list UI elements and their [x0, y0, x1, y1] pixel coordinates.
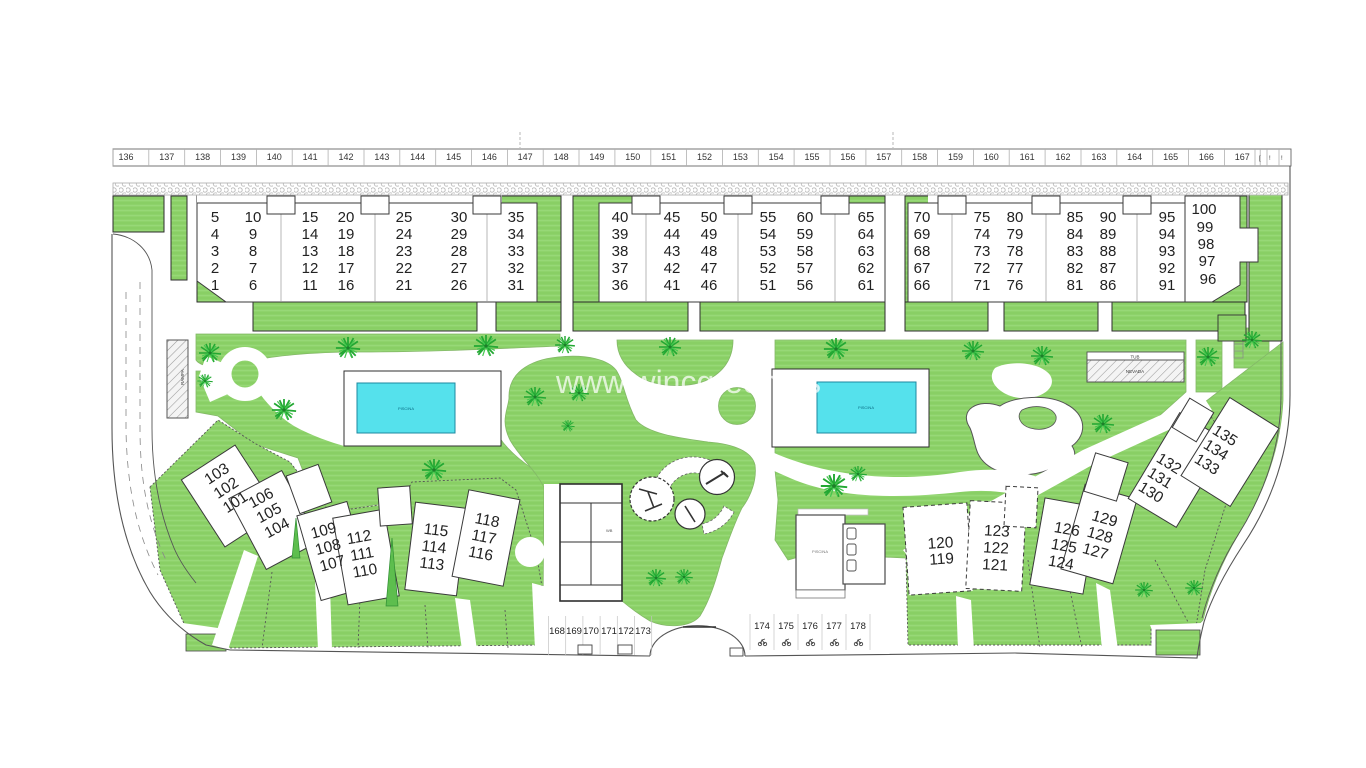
svg-text:8079787776: 8079787776	[1007, 209, 1024, 294]
svg-text:54321: 54321	[211, 209, 219, 294]
svg-text:NEVADA: NEVADA	[1126, 369, 1144, 374]
svg-text:9594939291: 9594939291	[1159, 209, 1176, 294]
svg-text:123122121: 123122121	[982, 522, 1011, 574]
svg-text:3029282726: 3029282726	[451, 209, 468, 294]
svg-text:1514131211: 1514131211	[302, 209, 319, 294]
svg-text:7574737271: 7574737271	[974, 209, 991, 294]
svg-text:www.wincgreen.es: www.wincgreen.es	[555, 364, 821, 400]
svg-text:9089888786: 9089888786	[1100, 209, 1117, 294]
svg-text:PISCINA: PISCINA	[398, 406, 414, 411]
svg-text:5554535251: 5554535251	[760, 209, 777, 294]
svg-text:7069686766: 7069686766	[914, 209, 931, 294]
svg-text:5049484746: 5049484746	[701, 209, 718, 294]
svg-text:4039383736: 4039383736	[612, 209, 629, 294]
svg-text:PISCINA: PISCINA	[812, 549, 828, 554]
svg-text:TUB: TUB	[1131, 355, 1140, 360]
svg-text:6059585756: 6059585756	[797, 209, 814, 294]
svg-text:WB: WB	[606, 528, 613, 533]
svg-text:3534333231: 3534333231	[508, 209, 525, 294]
svg-text:2524232221: 2524232221	[396, 209, 413, 294]
svg-text:6564636261: 6564636261	[858, 209, 875, 294]
svg-text:RAMPA: RAMPA	[180, 369, 185, 385]
svg-text:PISCINA: PISCINA	[858, 405, 874, 410]
svg-text:4544434241: 4544434241	[664, 209, 681, 294]
svg-text:8584838281: 8584838281	[1067, 209, 1084, 294]
svg-text:120119: 120119	[927, 534, 955, 569]
svg-text:2019181716: 2019181716	[338, 209, 355, 294]
